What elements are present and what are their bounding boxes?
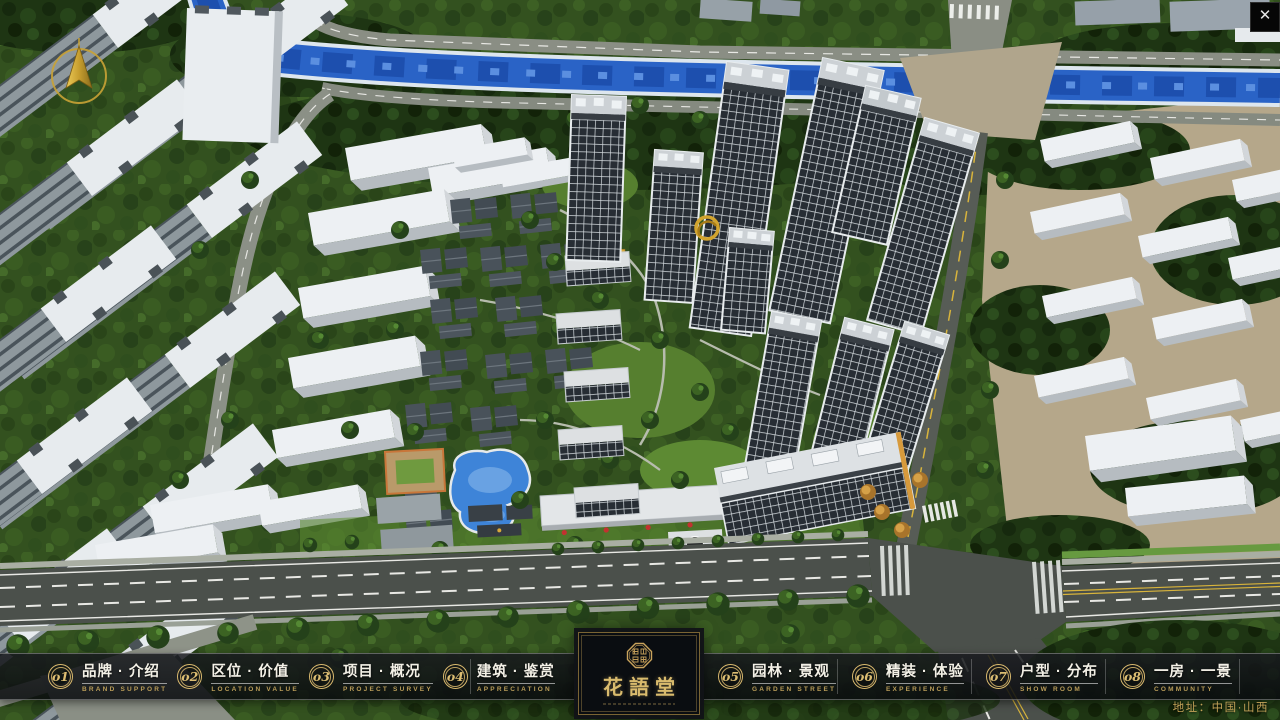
app-window: ✕ o1 品牌 · 介绍BRAND SUPPORT o2 区位 · 价值LOCA… bbox=[0, 0, 1280, 720]
nav-label-zh: 项目 · 概况 bbox=[343, 660, 421, 681]
nav-number-badge: o2 bbox=[177, 664, 202, 689]
nav-label-divider bbox=[1154, 683, 1232, 684]
nav-label-en: APPRECIATION bbox=[477, 686, 552, 693]
nav-label-en: SHOW ROOM bbox=[1020, 686, 1082, 693]
nav-number-badge: o3 bbox=[309, 664, 334, 689]
nav-label-divider bbox=[211, 683, 299, 684]
nav-item-architecture[interactable]: o4 建筑 · 鉴赏APPRECIATION bbox=[443, 654, 555, 699]
nav-label-zh: 建筑 · 鉴赏 bbox=[477, 660, 555, 681]
nav-label-divider bbox=[82, 683, 167, 684]
nav-number-badge: o7 bbox=[986, 664, 1011, 689]
nav-number-badge: o6 bbox=[852, 664, 877, 689]
project-logo-panel[interactable]: 花語堂 bbox=[578, 632, 700, 715]
project-name-subtitle-line bbox=[603, 703, 675, 705]
nav-label-divider bbox=[343, 683, 433, 684]
nav-number-badge: o1 bbox=[48, 664, 73, 689]
nav-label-zh: 一房 · 一景 bbox=[1154, 660, 1232, 681]
nav-label-divider bbox=[477, 683, 555, 684]
nav-label-zh: 区位 · 价值 bbox=[211, 660, 289, 681]
nav-item-location-value[interactable]: o2 区位 · 价值LOCATION VALUE bbox=[177, 654, 299, 699]
masterplan-render bbox=[0, 0, 1280, 720]
nav-label-zh: 精装 · 体验 bbox=[886, 660, 964, 681]
nav-label-en: PROJECT SURVEY bbox=[343, 686, 433, 693]
nav-item-brand-intro[interactable]: o1 品牌 · 介绍BRAND SUPPORT bbox=[48, 654, 167, 699]
seal-emblem-icon bbox=[626, 642, 653, 669]
nav-item-garden-landscape[interactable]: o5 园林 · 景观GARDEN STREET bbox=[704, 654, 838, 699]
nav-label-en: BRAND SUPPORT bbox=[82, 686, 167, 693]
nav-label-en: EXPERIENCE bbox=[886, 686, 950, 693]
nav-label-en: COMMUNITY bbox=[1154, 686, 1214, 693]
nav-group-right: o5 园林 · 景观GARDEN STREET o6 精装 · 体验EXPERI… bbox=[704, 654, 1240, 699]
nav-number-badge: o4 bbox=[443, 664, 468, 689]
nav-label-en: LOCATION VALUE bbox=[211, 686, 299, 693]
project-address: 地址：中国·山西 bbox=[1173, 699, 1269, 715]
close-button[interactable]: ✕ bbox=[1250, 2, 1280, 32]
project-name: 花語堂 bbox=[597, 671, 681, 700]
nav-label-zh: 园林 · 景观 bbox=[752, 660, 830, 681]
nav-group-left: o1 品牌 · 介绍BRAND SUPPORT o2 区位 · 价值LOCATI… bbox=[48, 654, 555, 699]
nav-number-badge: o5 bbox=[718, 664, 743, 689]
nav-label-en: GARDEN STREET bbox=[752, 686, 836, 693]
nav-item-project-survey[interactable]: o3 项目 · 概况PROJECT SURVEY bbox=[309, 654, 433, 699]
nav-number-badge: o8 bbox=[1120, 664, 1145, 689]
nav-label-zh: 品牌 · 介绍 bbox=[82, 660, 160, 681]
nav-item-room-view[interactable]: o8 一房 · 一景COMMUNITY bbox=[1106, 654, 1240, 699]
nav-item-floorplan-distribution[interactable]: o7 户型 · 分布SHOW ROOM bbox=[972, 654, 1106, 699]
nav-item-finishing-experience[interactable]: o6 精装 · 体验EXPERIENCE bbox=[838, 654, 972, 699]
nav-label-zh: 户型 · 分布 bbox=[1020, 660, 1098, 681]
nav-label-divider bbox=[752, 683, 836, 684]
nav-label-divider bbox=[1020, 683, 1098, 684]
close-icon: ✕ bbox=[1259, 7, 1272, 24]
nav-label-divider bbox=[886, 683, 964, 684]
